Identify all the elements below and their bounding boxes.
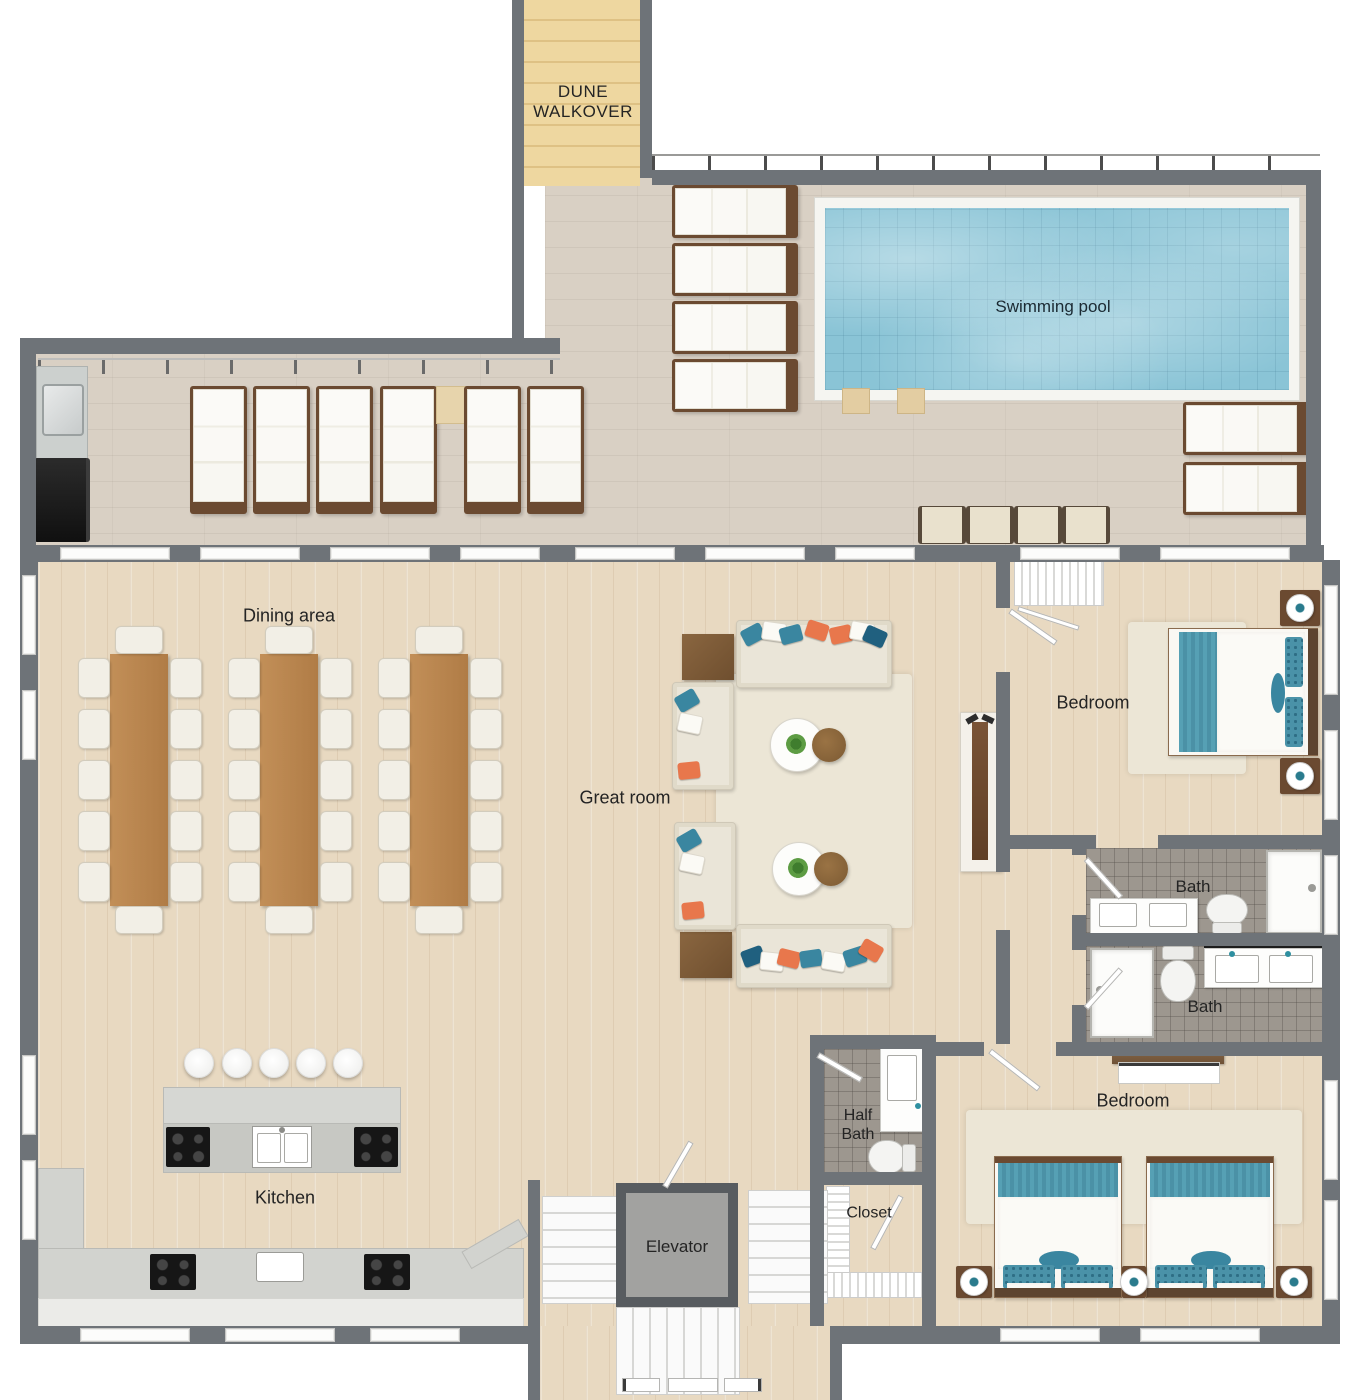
lounger-cushion (193, 389, 244, 502)
dining-chair (265, 906, 313, 934)
faucet-icon (279, 1127, 285, 1133)
wall (824, 1172, 922, 1185)
window (835, 547, 915, 560)
side-table (680, 932, 732, 978)
kitchen-sink (256, 1252, 304, 1282)
dining-chair (320, 811, 352, 851)
dining-chair (228, 811, 260, 851)
throw-pillow (681, 901, 705, 920)
wall (20, 338, 560, 354)
wall (1072, 1005, 1086, 1044)
dining-table (410, 654, 468, 906)
dining-chair-column (170, 658, 200, 902)
dining-chair (78, 811, 110, 851)
cooktop (150, 1254, 196, 1290)
window (80, 1328, 190, 1342)
dining-chair (265, 626, 313, 654)
lounge-chair (380, 386, 437, 514)
sink-basin (887, 1055, 917, 1101)
bar-stool (259, 1048, 289, 1078)
room-label-closet: Closet (846, 1205, 891, 1224)
dining-chair (470, 862, 502, 902)
dining-chair (415, 626, 463, 654)
shower-head-icon (1308, 884, 1316, 892)
coffee-table (812, 728, 846, 762)
throw-pillow (799, 949, 823, 969)
wall (1056, 1042, 1322, 1056)
sink-basin (1215, 955, 1259, 983)
deck-chair (1062, 506, 1110, 544)
dining-chair-column (320, 658, 350, 902)
bed-blanket (998, 1163, 1118, 1197)
dining-chair (378, 760, 410, 800)
room-label-bedroom-bottom: Bedroom (1096, 1090, 1169, 1111)
window (22, 575, 36, 655)
wall (830, 1326, 842, 1400)
dining-chair (115, 906, 163, 934)
dining-chair (415, 906, 463, 934)
faucet-icon (1229, 951, 1235, 957)
window (1140, 1328, 1260, 1342)
lounge-chair (672, 359, 798, 412)
window (22, 1160, 36, 1240)
sink-basin (1269, 955, 1313, 983)
dining-chair (378, 709, 410, 749)
dining-chair-column (228, 658, 258, 902)
tv (972, 722, 988, 860)
dining-chair (170, 811, 202, 851)
bar-stool (184, 1048, 214, 1078)
stair-landing-plate (622, 1378, 660, 1392)
lounger-cushion (383, 389, 434, 502)
wall (1010, 835, 1096, 849)
dining-chair (378, 658, 410, 698)
dining-table (260, 654, 318, 906)
dining-chair (228, 658, 260, 698)
cooktop (364, 1254, 410, 1290)
room-label-elevator: Elevator (646, 1237, 708, 1257)
headboard (1147, 1288, 1273, 1297)
kitchen-island (163, 1087, 401, 1125)
dining-chair (320, 709, 352, 749)
room-label-bath-bottom: Bath (1188, 997, 1223, 1017)
wall (1086, 933, 1322, 946)
lounge-chair (1183, 402, 1309, 455)
kitchen-sink (252, 1126, 312, 1168)
lounger-cushion (319, 389, 370, 502)
table-lamp (960, 1268, 988, 1296)
tv (1118, 1062, 1220, 1084)
dining-chair (170, 760, 202, 800)
room-label-dune-walkover: DUNE WALKOVER (518, 82, 648, 122)
closet-shelves (826, 1272, 924, 1298)
lounge-chair (464, 386, 521, 514)
bed-pillow (1285, 697, 1303, 747)
wall (20, 338, 36, 560)
window (330, 547, 430, 560)
dining-chair-column (470, 658, 500, 902)
lounger-cushion (256, 389, 307, 502)
wall (652, 170, 1320, 185)
dining-chair (78, 862, 110, 902)
dining-chair (228, 862, 260, 902)
wall (512, 0, 524, 354)
dining-chair (78, 658, 110, 698)
throw-pillow (677, 761, 701, 780)
potted-plant (788, 858, 808, 878)
lounger-cushion (1186, 405, 1297, 452)
dining-chair (78, 709, 110, 749)
bar-stool (222, 1048, 252, 1078)
lounge-chair (672, 243, 798, 296)
dining-chair (320, 760, 352, 800)
wall (1306, 170, 1321, 560)
bed-pillow (1285, 637, 1303, 687)
room-label-kitchen: Kitchen (255, 1187, 315, 1208)
dining-chair (470, 658, 502, 698)
wall (1072, 849, 1086, 855)
toilet (868, 1140, 906, 1174)
room-label-dining-area: Dining area (243, 605, 335, 626)
window (60, 547, 170, 560)
dining-set (376, 632, 502, 928)
lounge-chair (190, 386, 247, 514)
bed-bolster-pillow (1271, 673, 1285, 713)
dining-chair (115, 626, 163, 654)
window (1160, 547, 1290, 560)
lounger-cushion (675, 188, 786, 235)
bed-blanket (1179, 632, 1217, 752)
window (22, 690, 36, 760)
cooktop (166, 1127, 210, 1167)
wall (1158, 835, 1322, 849)
pool-step (842, 388, 870, 414)
stair-landing-plate (668, 1378, 718, 1392)
room-label-bedroom-top: Bedroom (1056, 692, 1129, 713)
bed (994, 1156, 1122, 1298)
lounger-cushion (467, 389, 518, 502)
window (200, 547, 300, 560)
window (1000, 1328, 1100, 1342)
dining-chair (228, 709, 260, 749)
bar-stool (333, 1048, 363, 1078)
bed (1168, 628, 1318, 756)
pool-step (897, 388, 925, 414)
kitchen-cabinet-front (38, 1298, 524, 1328)
lounge-chair (253, 386, 310, 514)
dining-chair (470, 709, 502, 749)
table-lamp (1120, 1268, 1148, 1296)
window (1324, 1080, 1338, 1180)
entry-closet-shelves (1014, 560, 1104, 606)
window (225, 1328, 335, 1342)
window (1324, 855, 1338, 935)
room-label-bath-top: Bath (1176, 877, 1211, 897)
dining-chair (470, 760, 502, 800)
dining-chair (228, 760, 260, 800)
window (1020, 547, 1120, 560)
headboard (995, 1288, 1121, 1297)
stairs (542, 1196, 618, 1304)
lounge-chair (672, 185, 798, 238)
floor-plan-canvas: DUNE WALKOVER Swimming pool Dining area … (0, 0, 1354, 1400)
dining-chair (78, 760, 110, 800)
kitchen-counter (38, 1168, 84, 1254)
deck-chair (966, 506, 1014, 544)
dining-chair (170, 658, 202, 698)
dining-chair (470, 811, 502, 851)
dining-chair (378, 811, 410, 851)
window (575, 547, 675, 560)
half-bath-vanity (880, 1046, 924, 1132)
wall (810, 1035, 824, 1326)
lounger-cushion (1186, 465, 1297, 512)
grill (34, 458, 90, 542)
lounger-cushion (530, 389, 581, 502)
toilet (1160, 960, 1196, 1002)
dining-chair (320, 658, 352, 698)
dining-chair (378, 862, 410, 902)
lounge-chair (316, 386, 373, 514)
wall (996, 930, 1010, 1044)
sink-basin (1149, 903, 1187, 927)
bed (1146, 1156, 1274, 1298)
dining-set (226, 632, 352, 928)
bar-stool (296, 1048, 326, 1078)
bath-vanity (1090, 898, 1198, 934)
lounge-chair (672, 301, 798, 354)
lounger-cushion (675, 246, 786, 293)
dining-table (110, 654, 168, 906)
faucet-icon (915, 1103, 921, 1109)
window (1324, 730, 1338, 820)
deck-pergola-beam (38, 358, 560, 374)
table-lamp (1286, 762, 1314, 790)
toilet-tank (902, 1144, 916, 1172)
room-label-half-bath: Half Bath (832, 1107, 884, 1145)
wall (1072, 915, 1086, 950)
wall (922, 1035, 936, 1326)
deck-chair (1014, 506, 1062, 544)
table-lamp (1280, 1268, 1308, 1296)
lounger-cushion (675, 362, 786, 409)
dining-chair-column (78, 658, 108, 902)
wall (996, 672, 1010, 872)
deck-chair (918, 506, 966, 544)
dining-chair (320, 862, 352, 902)
window (1324, 585, 1338, 695)
shower (1266, 850, 1322, 934)
dining-chair (170, 862, 202, 902)
window (1324, 1200, 1338, 1300)
stair-landing-plate (724, 1378, 762, 1392)
sink-basin (1099, 903, 1137, 927)
toilet-tank (1162, 946, 1194, 960)
room-label-great-room: Great room (579, 787, 670, 808)
window (460, 547, 540, 560)
potted-plant (786, 734, 806, 754)
sink-basin (284, 1133, 308, 1163)
table-lamp (1286, 594, 1314, 622)
bed-blanket (1150, 1163, 1270, 1197)
lounge-chair (1183, 462, 1309, 515)
wall (528, 1326, 540, 1400)
window (22, 1055, 36, 1135)
dining-chair (170, 709, 202, 749)
faucet-icon (1285, 951, 1291, 957)
room-label-swimming-pool: Swimming pool (995, 297, 1110, 317)
window (370, 1328, 460, 1342)
bath-vanity (1204, 948, 1324, 988)
window (705, 547, 805, 560)
coffee-table (814, 852, 848, 886)
side-table (682, 634, 734, 680)
outdoor-sink (42, 384, 84, 436)
cooktop (354, 1127, 398, 1167)
wall (528, 1180, 540, 1326)
lounge-chair (527, 386, 584, 514)
lounger-cushion (675, 304, 786, 351)
wall (996, 560, 1010, 608)
dining-chair-column (378, 658, 408, 902)
headboard (1308, 629, 1318, 755)
sink-basin (257, 1133, 281, 1163)
dining-set (76, 632, 202, 928)
wall (810, 1035, 936, 1049)
